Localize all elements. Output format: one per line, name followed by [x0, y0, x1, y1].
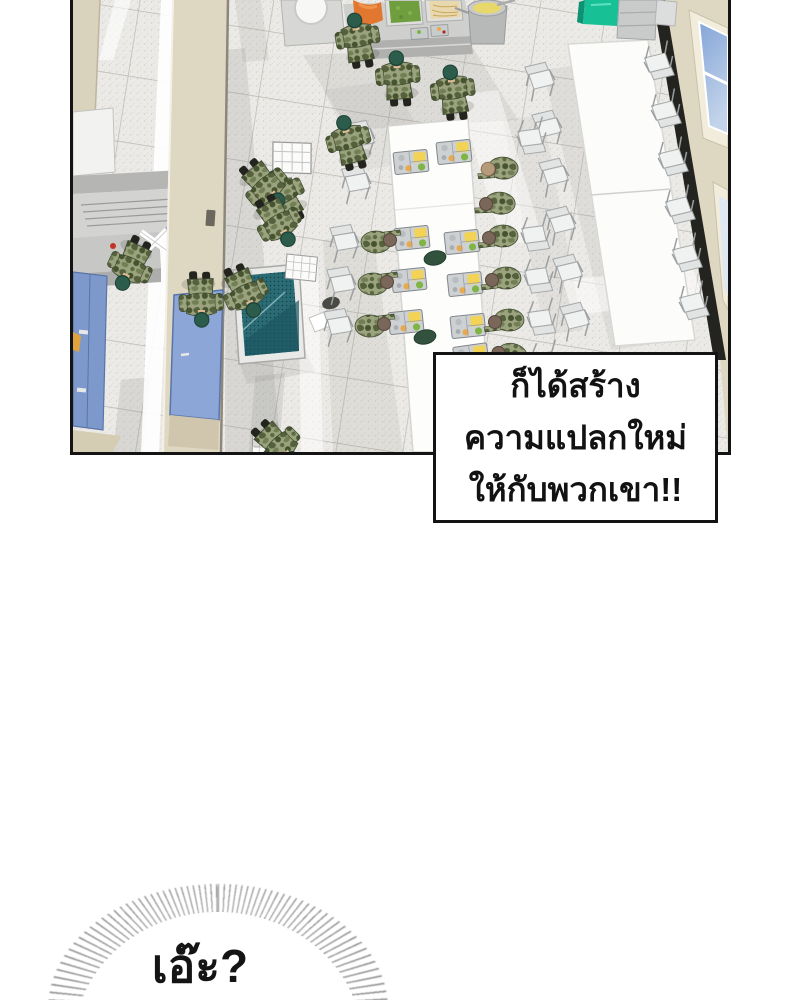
caption-line-2: ความแปลกใหม่ — [464, 412, 687, 464]
blue-cabinets — [73, 272, 107, 430]
caption-line-3: ให้กับพวกเขา!! — [469, 464, 682, 516]
red-cup — [110, 243, 116, 249]
caption-line-1: ก็ได้สร้าง — [510, 360, 641, 412]
kitchen-cabinet — [73, 108, 115, 176]
door-base — [168, 415, 219, 450]
bubble-text: เอ๊ะ? — [30, 930, 370, 1000]
burst-speech-bubble: เอ๊ะ? — [30, 872, 402, 1000]
caption-box: ก็ได้สร้าง ความแปลกใหม่ ให้กับพวกเขา!! — [433, 352, 718, 523]
tray-return-station — [577, 0, 619, 26]
webtoon-page: ก็ได้สร้าง ความแปลกใหม่ ให้กับพวกเขา!! เ… — [0, 0, 800, 1000]
green-food-pan — [385, 0, 423, 26]
partition-wall — [163, 0, 228, 452]
wall-sign — [205, 210, 215, 227]
round-pot — [295, 0, 327, 24]
